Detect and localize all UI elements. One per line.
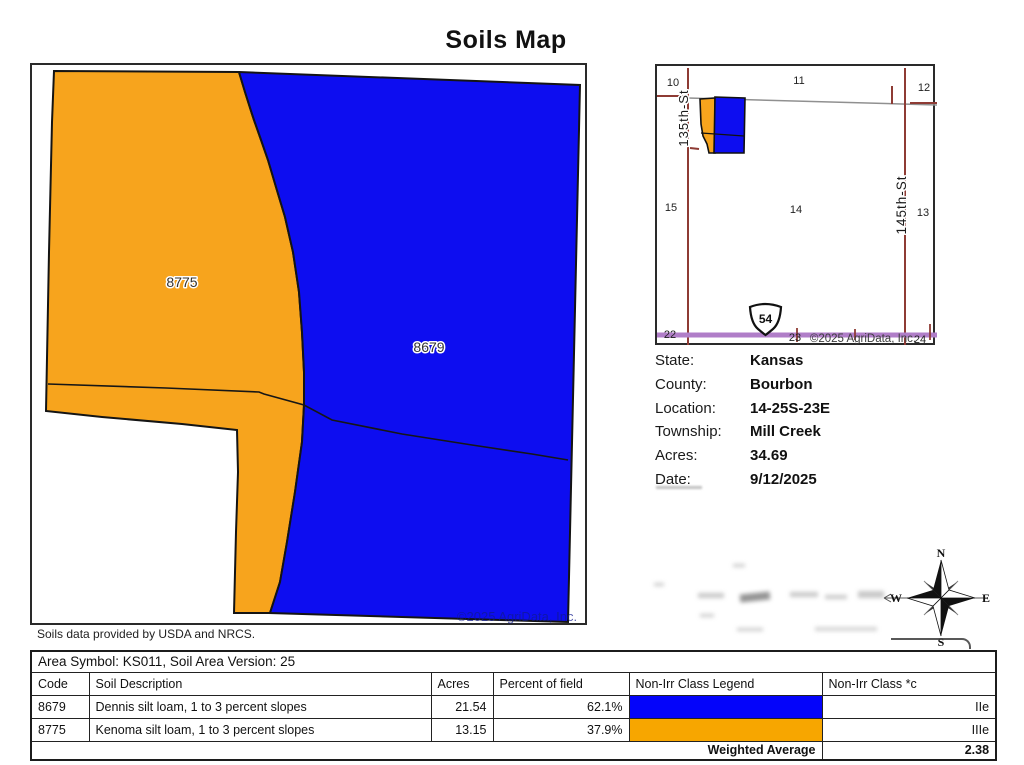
- col-header-class: Non-Irr Class *c: [822, 672, 996, 695]
- usda-attribution: Soils data provided by USDA and NRCS.: [37, 627, 255, 641]
- location-label: Location:: [655, 400, 750, 417]
- main-soils-map-svg: 8775 8679 ©2025 AgriData, Inc.: [32, 65, 589, 627]
- svg-text:14: 14: [790, 204, 802, 216]
- soil-label-8679: 8679: [413, 339, 444, 355]
- table-header-row: Code Soil Description Acres Percent of f…: [31, 672, 996, 695]
- svg-text:10: 10: [667, 77, 679, 89]
- road-label-135th-st: 135th-St: [676, 89, 691, 146]
- county-label: County:: [655, 376, 750, 393]
- svg-text:12: 12: [918, 82, 930, 94]
- info-row-state: State: Kansas: [655, 349, 955, 373]
- col-header-legend: Non-Irr Class Legend: [629, 672, 822, 695]
- weighted-average-label: Weighted Average: [31, 741, 822, 760]
- mini-parcel-blue: [714, 97, 745, 153]
- township-value: Mill Creek: [750, 423, 821, 440]
- cell-acres: 13.15: [431, 718, 493, 741]
- svg-text:15: 15: [665, 202, 677, 214]
- svg-text:13: 13: [917, 207, 929, 219]
- cell-description: Kenoma silt loam, 1 to 3 percent slopes: [89, 718, 431, 741]
- col-header-percent: Percent of field: [493, 672, 629, 695]
- compass-rose: N S W E: [878, 546, 994, 648]
- soils-map-report-page: Soils Map 8775 8679 ©2025 AgriData, Inc.…: [0, 0, 1024, 765]
- date-value: 9/12/2025: [750, 471, 817, 488]
- parcel-info-panel: State: Kansas County: Bourbon Location: …: [655, 349, 955, 491]
- smudge: [654, 583, 664, 586]
- weighted-average-row: Weighted Average 2.38: [31, 741, 996, 760]
- info-row-acres: Acres: 34.69: [655, 444, 955, 468]
- cell-description: Dennis silt loam, 1 to 3 percent slopes: [89, 695, 431, 718]
- smudge: [790, 592, 818, 597]
- smudge: [858, 591, 884, 598]
- compass-w: W: [890, 591, 902, 605]
- col-header-acres: Acres: [431, 672, 493, 695]
- smudge: [740, 591, 771, 602]
- table-row: 8775 Kenoma silt loam, 1 to 3 percent sl…: [31, 718, 996, 741]
- mini-parcel-orange: [700, 98, 715, 153]
- smudge: [825, 595, 847, 599]
- svg-text:11: 11: [793, 75, 804, 87]
- smudge: [815, 627, 877, 631]
- info-row-county: County: Bourbon: [655, 373, 955, 397]
- smudge: [698, 593, 724, 598]
- us-54-highway-shield: 54: [750, 304, 781, 335]
- soils-table-container: Area Symbol: KS011, Soil Area Version: 2…: [30, 650, 997, 761]
- cell-percent: 62.1%: [493, 695, 629, 718]
- col-header-code: Code: [31, 672, 89, 695]
- svg-text:22: 22: [664, 329, 676, 341]
- legend-swatch-orange: [629, 718, 822, 741]
- township-label: Township:: [655, 423, 750, 440]
- soil-label-8775: 8775: [166, 274, 197, 290]
- info-row-date: Date: 9/12/2025: [655, 467, 955, 491]
- erased-box-outline: [891, 638, 971, 649]
- inset-map-watermark: ©2025 AgriData, Inc.: [810, 333, 916, 345]
- cell-class: IIe: [822, 695, 996, 718]
- inset-location-map-panel: 10 11 12 15 14 13 22 23 24 135th-St 145t…: [655, 64, 935, 345]
- legend-swatch-blue: [629, 695, 822, 718]
- cell-class: IIIe: [822, 718, 996, 741]
- table-row: 8679 Dennis silt loam, 1 to 3 percent sl…: [31, 695, 996, 718]
- smudge: [737, 628, 763, 631]
- acres-value: 34.69: [750, 447, 788, 464]
- main-map-watermark: ©2025 AgriData, Inc.: [457, 609, 577, 624]
- state-label: State:: [655, 352, 750, 369]
- cell-acres: 21.54: [431, 695, 493, 718]
- smudge: [700, 614, 714, 617]
- cell-code: 8775: [31, 718, 89, 741]
- area-symbol-row: Area Symbol: KS011, Soil Area Version: 2…: [31, 651, 996, 672]
- state-value: Kansas: [750, 352, 803, 369]
- svg-text:54: 54: [759, 312, 773, 326]
- info-row-township: Township: Mill Creek: [655, 420, 955, 444]
- col-header-description: Soil Description: [89, 672, 431, 695]
- info-row-location: Location: 14-25S-23E: [655, 396, 955, 420]
- inset-location-map-svg: 10 11 12 15 14 13 22 23 24 135th-St 145t…: [657, 66, 937, 347]
- road-label-145th-st: 145th-St: [894, 175, 909, 234]
- date-underline-smudge: [656, 486, 702, 489]
- weighted-average-value: 2.38: [822, 741, 996, 760]
- main-soils-map-panel: 8775 8679 ©2025 AgriData, Inc.: [30, 63, 587, 625]
- acres-label: Acres:: [655, 447, 750, 464]
- smudge: [733, 564, 745, 567]
- compass-n: N: [937, 546, 946, 560]
- date-label: Date:: [655, 471, 750, 488]
- cell-percent: 37.9%: [493, 718, 629, 741]
- cell-code: 8679: [31, 695, 89, 718]
- area-symbol-text: Area Symbol: KS011, Soil Area Version: 2…: [31, 651, 996, 672]
- soils-table: Area Symbol: KS011, Soil Area Version: 2…: [30, 650, 997, 761]
- page-title: Soils Map: [0, 26, 1012, 55]
- svg-text:23: 23: [789, 332, 801, 344]
- county-value: Bourbon: [750, 376, 812, 393]
- compass-e: E: [982, 591, 990, 605]
- location-value: 14-25S-23E: [750, 400, 830, 417]
